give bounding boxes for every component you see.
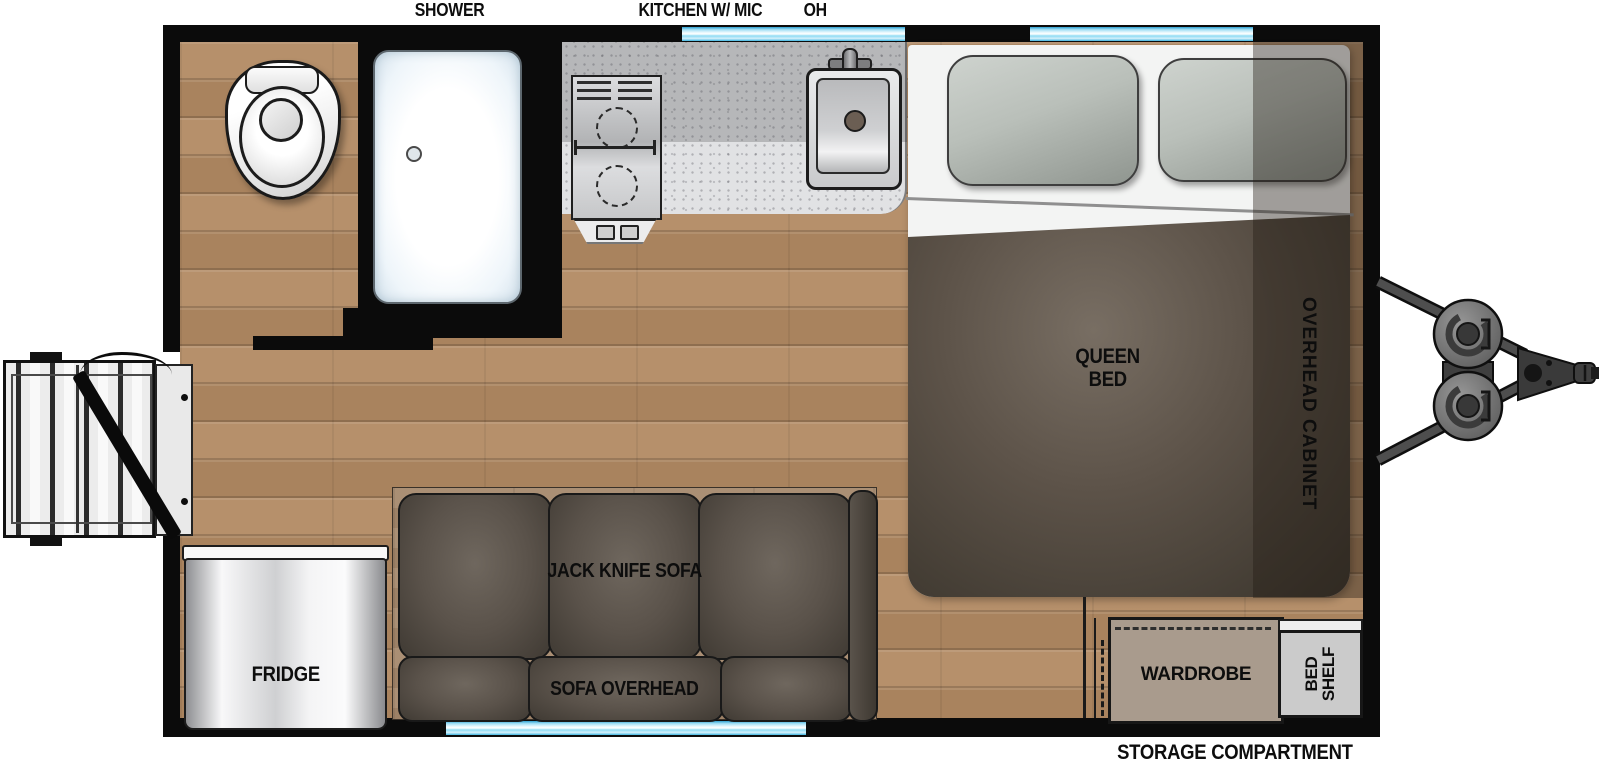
sofa-text: JACK KNIFE SOFA — [548, 560, 702, 583]
wardrobe-dashed-line — [1101, 640, 1104, 716]
fridge-text: FRIDGE — [252, 663, 320, 687]
stove-grip-right — [620, 225, 639, 240]
rv-floorplan: SHOWER KITCHEN W/ MIC OH — [0, 0, 1600, 770]
sink-drain — [844, 110, 866, 132]
overhead-cabinet: OVERHEAD CABINET — [1253, 42, 1363, 598]
toilet-seat-hinge — [259, 98, 303, 142]
label-wardrobe: WARDROBE — [1141, 656, 1252, 686]
hitch-tip — [1591, 367, 1599, 379]
stove-divider-tick-right — [653, 140, 656, 155]
sofa-overhead-text: SOFA OVERHEAD — [550, 678, 698, 701]
shower-drain — [406, 146, 422, 162]
label-shower: SHOWER — [365, 0, 535, 21]
bed-base-line — [1083, 597, 1086, 718]
wardrobe: WARDROBE — [1108, 617, 1284, 724]
label-oh: OH — [780, 0, 850, 21]
sofa-window — [446, 721, 806, 735]
stove — [571, 75, 663, 247]
queen-bed-line2: BED — [1089, 368, 1127, 391]
entry-steps-divider — [76, 365, 79, 533]
shower-enclosure — [358, 28, 562, 310]
sofa-overhead-cushion-1 — [398, 656, 532, 722]
propane-tank-2 — [1434, 372, 1502, 440]
label-shower-text: SHOWER — [415, 0, 485, 21]
label-kitchen-w-mic: KITCHEN W/ MIC — [590, 0, 810, 21]
sofa-armrest — [848, 490, 878, 722]
label-storage-compartment: STORAGE COMPARTMENT — [1000, 741, 1353, 765]
shower-pan — [373, 50, 522, 304]
trailer-hitch-graphic — [1373, 258, 1600, 490]
label-fridge: FRIDGE — [182, 663, 390, 687]
stove-grip-left — [596, 225, 615, 240]
coupler-bolt-2 — [1546, 380, 1552, 386]
label-queen-bed: QUEEN BED — [948, 345, 1268, 391]
stove-vent-right — [618, 81, 652, 101]
label-jack-knife-sofa: JACK KNIFE SOFA — [400, 560, 850, 583]
bed-shelf: BED SHELF — [1278, 630, 1363, 718]
kitchen-sink — [806, 44, 906, 190]
fridge-body — [184, 558, 387, 730]
label-oh-text: OH — [803, 0, 826, 21]
toilet — [225, 60, 340, 200]
step-bracket-bottom — [30, 536, 62, 546]
stove-burner-rear — [596, 107, 638, 149]
stove-divider — [575, 146, 655, 149]
door-hinge-bottom — [181, 498, 188, 505]
bed-shelf-line2: SHELF — [1319, 647, 1338, 701]
propane-tank-1 — [1434, 300, 1502, 368]
stove-burner-front — [596, 165, 638, 207]
bathroom-wall-segment — [343, 308, 562, 338]
fridge: FRIDGE — [182, 545, 390, 731]
coupler-bolt-1 — [1546, 360, 1552, 366]
coupler-hole — [1524, 364, 1542, 382]
pillow-left — [947, 55, 1139, 186]
bathroom-partition-wall — [253, 336, 433, 350]
wardrobe-side-line — [1094, 618, 1096, 718]
step-bracket-top — [30, 352, 62, 362]
label-bed-shelf: BED SHELF — [1303, 647, 1337, 701]
label-kitchen-text: KITCHEN W/ MIC — [638, 0, 762, 21]
stove-vent-left — [577, 81, 611, 101]
label-sofa-overhead: SOFA OVERHEAD — [528, 678, 720, 701]
kitchen-window — [682, 27, 905, 41]
stove-handle-panel — [573, 218, 657, 244]
wardrobe-dashed-top — [1115, 627, 1271, 630]
sofa-overhead-cushion-3 — [720, 656, 852, 722]
queen-bed-line1: QUEEN — [1076, 345, 1140, 368]
storage-text: STORAGE COMPARTMENT — [1117, 741, 1353, 765]
bed-window — [1030, 27, 1253, 41]
label-overhead-cabinet: OVERHEAD CABINET — [1297, 297, 1319, 510]
stove-divider-tick-left — [574, 140, 577, 155]
door-hinge-top — [181, 394, 188, 401]
